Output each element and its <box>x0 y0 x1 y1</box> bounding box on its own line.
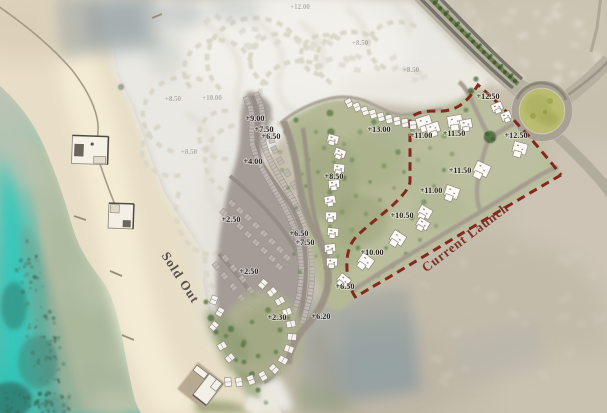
svg-text:+10.00: +10.00 <box>202 94 222 102</box>
svg-text:+10.50: +10.50 <box>390 211 413 220</box>
svg-text:+11.00: +11.00 <box>420 186 443 195</box>
svg-text:+6.50: +6.50 <box>262 132 281 141</box>
svg-text:+8.50: +8.50 <box>325 172 344 181</box>
svg-text:+8.50: +8.50 <box>403 66 420 74</box>
svg-text:+10.00: +10.00 <box>360 248 383 257</box>
svg-text:+6.20: +6.20 <box>312 312 331 321</box>
svg-text:+8.50: +8.50 <box>165 95 182 103</box>
svg-text:+12.50: +12.50 <box>504 131 527 140</box>
svg-text:+4.00: +4.00 <box>244 157 263 166</box>
svg-text:+11.00: +11.00 <box>410 131 433 140</box>
svg-text:+2.50: +2.50 <box>240 267 259 276</box>
svg-text:+6.50: +6.50 <box>336 282 355 291</box>
svg-text:+9.00: +9.00 <box>246 114 265 123</box>
svg-text:+11.50: +11.50 <box>449 166 472 175</box>
svg-text:+13.00: +13.00 <box>367 125 390 134</box>
svg-text:+12.50: +12.50 <box>476 92 499 101</box>
svg-text:+8.50: +8.50 <box>181 148 198 156</box>
svg-text:+6.50: +6.50 <box>290 229 309 238</box>
svg-text:+2.30: +2.30 <box>268 313 287 322</box>
svg-text:+7.50: +7.50 <box>296 238 315 247</box>
svg-text:+2.50: +2.50 <box>222 215 241 224</box>
svg-text:+8.50: +8.50 <box>352 39 369 47</box>
svg-text:+11.50: +11.50 <box>443 129 466 138</box>
svg-text:+12.00: +12.00 <box>290 3 310 11</box>
